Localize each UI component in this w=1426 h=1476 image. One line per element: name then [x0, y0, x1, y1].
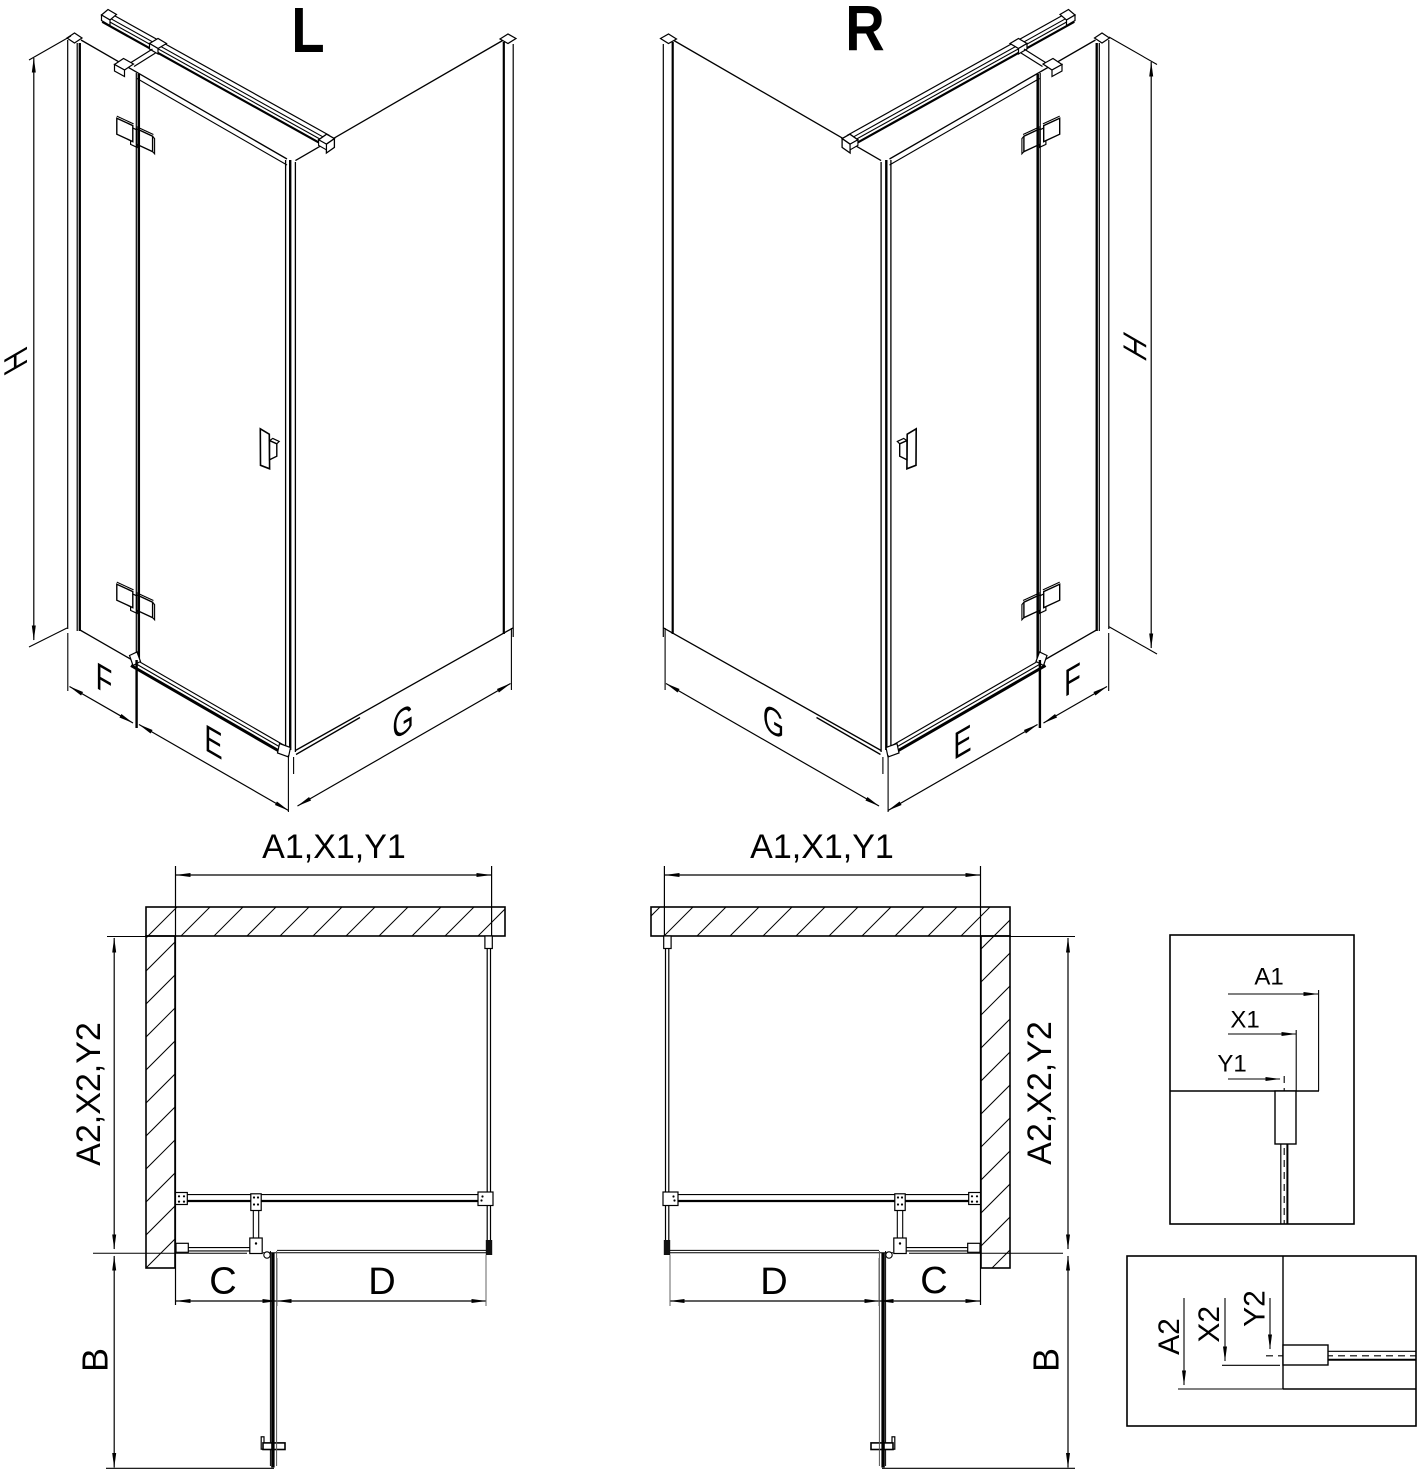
svg-text:A1: A1 [1254, 964, 1283, 991]
svg-text:B: B [1026, 1348, 1067, 1372]
svg-text:Y1: Y1 [1217, 1051, 1246, 1078]
svg-text:Y2: Y2 [1238, 1290, 1271, 1327]
svg-text:A2: A2 [1153, 1318, 1186, 1355]
svg-text:X2: X2 [1193, 1306, 1226, 1343]
svg-text:D: D [368, 1261, 395, 1303]
svg-text:D: D [760, 1261, 787, 1303]
svg-text:X1: X1 [1230, 1007, 1259, 1034]
svg-text:R: R [845, 0, 884, 65]
svg-text:A2,X2,Y2: A2,X2,Y2 [70, 1022, 108, 1166]
svg-text:A2,X2,Y2: A2,X2,Y2 [1021, 1021, 1059, 1165]
svg-text:A1,X1,Y1: A1,X1,Y1 [262, 828, 406, 866]
svg-text:B: B [75, 1348, 116, 1372]
svg-text:C: C [209, 1261, 236, 1303]
svg-text:A1,X1,Y1: A1,X1,Y1 [750, 828, 894, 866]
svg-text:C: C [920, 1260, 947, 1302]
svg-text:L: L [291, 0, 324, 66]
